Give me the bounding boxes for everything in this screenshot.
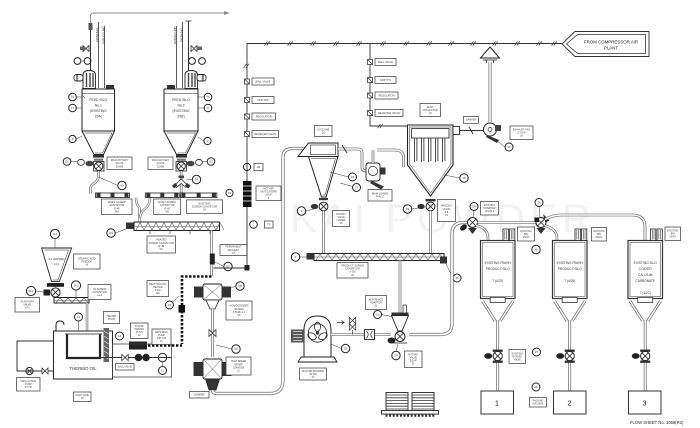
svg-text:08: 08: [238, 284, 242, 288]
svg-text:17: 17: [355, 185, 359, 189]
svg-text:No.1: No.1: [95, 104, 102, 108]
svg-text:RECEIVER VALVE: RECEIVER VALVE: [378, 111, 400, 115]
svg-text:35 KW: 35 KW: [108, 318, 116, 321]
svg-text:EXISTING FINISH: EXISTING FINISH: [557, 261, 584, 265]
svg-text:27: 27: [535, 350, 539, 354]
svg-text:DUPLEX UNIT: DUPLEX UNIT: [102, 26, 106, 44]
svg-text:19: 19: [406, 207, 410, 211]
svg-text:5A: 5A: [160, 247, 163, 251]
svg-text:CALCIUM: CALCIUM: [638, 273, 653, 277]
svg-text:THERMO OIL: THERMO OIL: [69, 366, 97, 371]
svg-text:4/9: 4/9: [165, 210, 169, 214]
svg-text:CARBONATE: CARBONATE: [635, 279, 655, 283]
svg-text:FAN 17: FAN 17: [376, 196, 385, 199]
svg-text:14.2: 14.2: [25, 307, 30, 310]
svg-text:PRODUCT SILO: PRODUCT SILO: [558, 267, 582, 271]
svg-text:REGULATOR: REGULATOR: [256, 114, 272, 118]
svg-text:4A: 4A: [120, 183, 124, 187]
svg-text:VALVE 4: VALVE 4: [485, 210, 495, 213]
svg-text:COATED: COATED: [639, 267, 653, 271]
svg-text:2: 2: [567, 399, 571, 408]
svg-text:DAMPER: DAMPER: [466, 119, 477, 122]
svg-text:7 (4/26): 7 (4/26): [564, 279, 575, 283]
svg-text:29A): 29A): [95, 115, 102, 119]
svg-text:D3: D3: [109, 231, 113, 235]
svg-text:TS: TS: [71, 96, 74, 99]
svg-text:11: 11: [161, 368, 164, 372]
svg-text:24: 24: [537, 200, 541, 204]
svg-text:FEED SILO: FEED SILO: [172, 98, 190, 102]
svg-text:BALL VALVE: BALL VALVE: [256, 79, 271, 83]
svg-text:26: 26: [534, 247, 538, 251]
svg-text:21: 21: [455, 276, 459, 280]
svg-text:FROM BAG: FROM BAG: [95, 28, 99, 42]
svg-text:18: 18: [462, 176, 466, 180]
svg-text:5A: 5A: [195, 177, 199, 181]
svg-text:VENT: VENT: [596, 236, 603, 239]
svg-text:13: 13: [168, 303, 172, 307]
svg-text:13: 13: [77, 315, 81, 319]
svg-text:EXISTING SILO: EXISTING SILO: [634, 261, 658, 265]
svg-text:FROM BAG: FROM BAG: [180, 28, 184, 42]
svg-text:7 (4/22): 7 (4/22): [492, 279, 503, 283]
svg-text:REGULATOR: REGULATOR: [379, 93, 395, 97]
svg-text:DAMPER: DAMPER: [194, 394, 205, 397]
svg-text:FLOW SHEET No. 1059(R2): FLOW SHEET No. 1059(R2): [630, 420, 684, 425]
svg-text:FEED SILO: FEED SILO: [89, 98, 107, 102]
svg-text:(EXISTING: (EXISTING: [90, 109, 107, 113]
svg-text:28: 28: [534, 385, 538, 389]
svg-text:PRODUCT SILO: PRODUCT SILO: [486, 267, 510, 271]
svg-text:EXISTING FINISH: EXISTING FINISH: [485, 261, 512, 265]
svg-text:7 (4/22): 7 (4/22): [640, 291, 651, 295]
svg-text:DUPLEX UNIT: DUPLEX UNIT: [173, 26, 177, 44]
svg-text:No.2: No.2: [177, 104, 184, 108]
svg-text:14.1: 14.1: [54, 262, 60, 266]
svg-text:PLANT: PLANT: [604, 46, 618, 51]
svg-text:4/9: 4/9: [115, 210, 119, 214]
svg-text:NFB TPS: NFB TPS: [258, 98, 269, 102]
svg-text:23: 23: [344, 346, 348, 350]
svg-text:(EXISTING: (EXISTING: [173, 109, 190, 113]
svg-text:1: 1: [495, 399, 499, 408]
svg-text:12: 12: [118, 334, 122, 338]
svg-text:14.1: 14.1: [53, 233, 58, 236]
svg-text:D1: D1: [65, 159, 69, 163]
svg-text:TS: TS: [206, 96, 209, 99]
svg-text:MACHINE: MACHINE: [532, 403, 543, 406]
svg-text:22: 22: [376, 312, 380, 316]
svg-text:24: 24: [472, 204, 476, 208]
svg-text:52/9M: 52/9M: [116, 164, 123, 168]
svg-text:26: 26: [507, 145, 511, 149]
svg-text:09: 09: [234, 347, 238, 351]
svg-text:24: 24: [394, 353, 398, 357]
svg-text:TS: TS: [267, 223, 271, 226]
svg-text:BALL VALVE: BALL VALVE: [378, 60, 393, 64]
svg-text:29B): 29B): [177, 115, 184, 119]
svg-text:14.3: 14.3: [74, 284, 79, 287]
svg-text:5/7 HP: 5/7 HP: [25, 386, 33, 389]
svg-text:3: 3: [642, 399, 646, 408]
svg-text:VENT: VENT: [670, 236, 677, 239]
svg-text:52/9M: 52/9M: [157, 164, 164, 168]
svg-text:RECEIVER VALVE: RECEIVER VALVE: [254, 132, 276, 136]
svg-text:HS: HS: [257, 165, 261, 169]
svg-text:FROM COMPRESSOR AIR: FROM COMPRESSOR AIR: [584, 40, 638, 45]
svg-text:16: 16: [351, 175, 355, 179]
svg-text:NFB TPS: NFB TPS: [380, 78, 391, 82]
svg-text:VENT: VENT: [523, 236, 530, 239]
svg-text:VALVE: VALVE: [514, 358, 522, 361]
svg-text:SA HOPPER: SA HOPPER: [48, 257, 64, 261]
svg-text:BALL VALVE: BALL VALVE: [118, 366, 132, 369]
svg-text:D2: D2: [209, 159, 213, 163]
svg-text:14.3: 14.3: [97, 294, 102, 297]
svg-text:14.2: 14.2: [29, 290, 34, 293]
